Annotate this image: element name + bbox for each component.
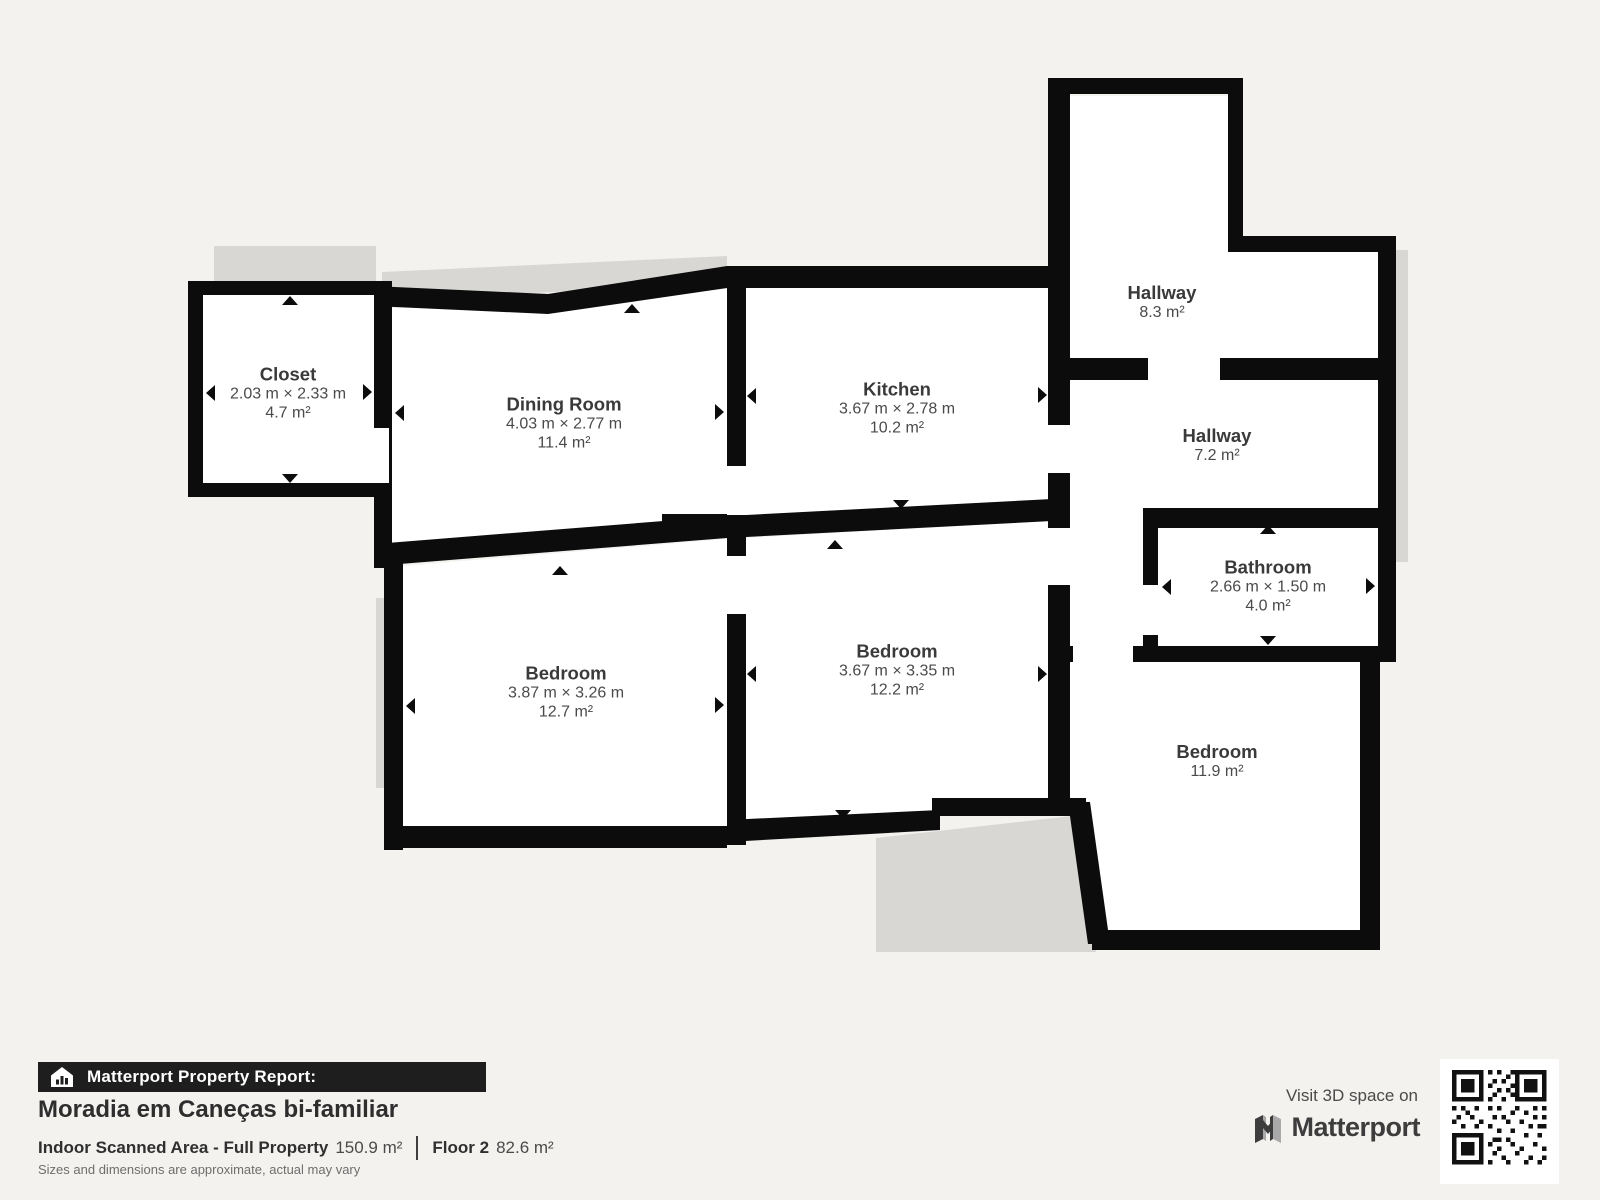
qr-code [1440, 1059, 1559, 1184]
disclaimer-text: Sizes and dimensions are approximate, ac… [38, 1162, 360, 1177]
floor-area-value: 82.6 m² [496, 1138, 554, 1158]
area-summary: Indoor Scanned Area - Full Property 150.… [38, 1136, 554, 1160]
floor-dining-room [392, 289, 727, 545]
floor-kitchen [746, 288, 1048, 517]
floor-hallway-top [1070, 96, 1378, 358]
visit-3d-text: Visit 3D space on [1220, 1086, 1418, 1106]
matterport-promo: Visit 3D space on Matterport [1220, 1086, 1420, 1143]
divider [416, 1136, 418, 1160]
report-banner-label: Matterport Property Report: [87, 1067, 316, 1087]
report-banner: Matterport Property Report: [38, 1062, 486, 1092]
scanned-area-label: Indoor Scanned Area - Full Property [38, 1138, 328, 1158]
matterport-wordmark: Matterport [1292, 1112, 1421, 1143]
floor-label: Floor 2 [432, 1138, 489, 1158]
floor-closet [203, 295, 374, 483]
scanned-area-value: 150.9 m² [335, 1138, 402, 1158]
house-chart-icon [51, 1067, 73, 1087]
property-title: Moradia em Caneças bi-familiar [38, 1096, 398, 1124]
qr-code-pattern [1440, 1059, 1559, 1184]
floor-bedroom-left [403, 539, 727, 827]
matterport-floorplan-page: Closet 2.03 m × 2.33 m 4.7 m² Dining Roo… [0, 0, 1600, 1200]
floor-plan [0, 0, 1600, 1200]
matterport-m-icon [1253, 1113, 1283, 1143]
floor-bedroom-right [1070, 662, 1360, 930]
brand-row: Matterport [1220, 1112, 1420, 1143]
floor-bedroom-middle [746, 521, 1048, 822]
floor-bathroom [1158, 528, 1378, 646]
